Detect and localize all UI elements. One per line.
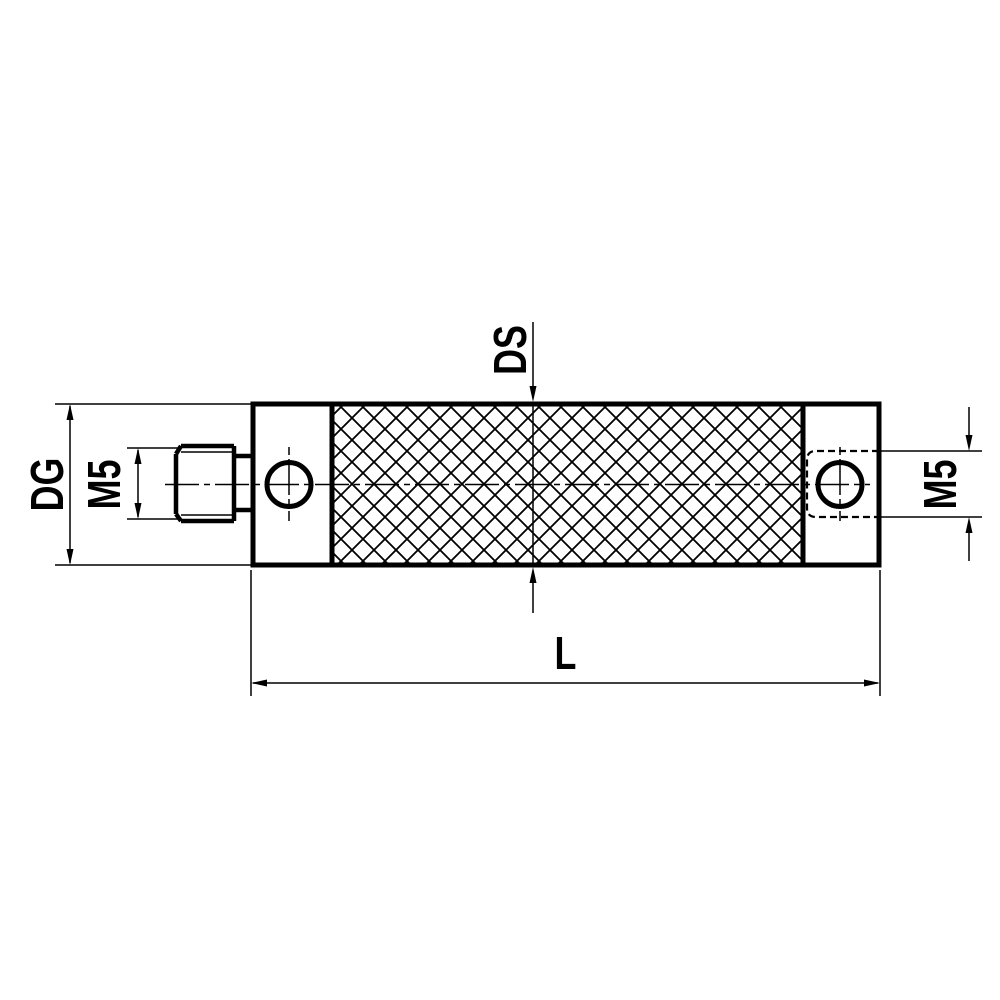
m5-thread-stud xyxy=(176,446,234,521)
l-arrowhead-left xyxy=(251,680,267,687)
dimension-drawing: DG M5 DS M5 L xyxy=(0,0,1000,1000)
m5-right-arrowhead-down xyxy=(966,435,973,451)
m5-right-arrowhead-up xyxy=(966,517,973,533)
ds-arrowhead-down xyxy=(530,386,537,402)
ds-label: DS xyxy=(485,325,536,375)
dg-label: DG xyxy=(22,458,73,512)
dg-arrowhead-up xyxy=(67,404,74,420)
dg-arrowhead-down xyxy=(67,549,74,565)
thread-chamfer-top xyxy=(176,446,181,454)
thread-chamfer-bottom xyxy=(176,514,181,521)
l-arrowhead-right xyxy=(864,680,880,687)
l-label: L xyxy=(555,628,577,679)
dim-m5-left: M5 xyxy=(79,448,180,519)
m5-left-arrowhead-down xyxy=(135,503,142,519)
m5-right-label: M5 xyxy=(915,460,966,510)
m5-left-arrowhead-up xyxy=(135,448,142,464)
thread-neck xyxy=(234,456,253,510)
technical-drawing-canvas: DG M5 DS M5 L xyxy=(0,0,1000,1000)
dim-l: L xyxy=(251,570,880,696)
ds-arrowhead-up xyxy=(530,567,537,583)
component-view xyxy=(165,404,879,565)
dim-m5-right: M5 xyxy=(879,407,982,561)
m5-left-label: M5 xyxy=(79,460,130,510)
